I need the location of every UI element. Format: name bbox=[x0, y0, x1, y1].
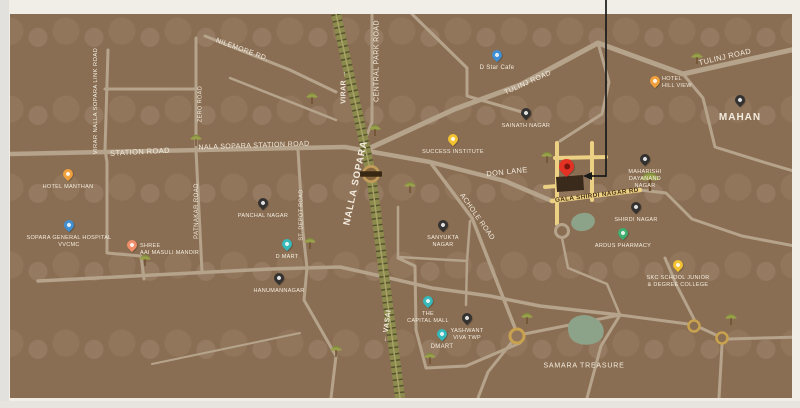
sopara-general-hospital-label-line: VVCMC bbox=[26, 242, 111, 249]
ardus-pharmacy-label: ARDUS PHARMACY bbox=[595, 243, 651, 250]
shree-aai-masuli-mandir-label-line: AAI MASULI MANDIR bbox=[140, 250, 199, 257]
hotel-hill-view-label-line: HOTEL bbox=[662, 76, 692, 83]
maharishi-dayanand-nagar-label: MAHARISHIDAYANANDNAGAR bbox=[628, 169, 661, 190]
sanyukta-nagar-label: SANYUKTANAGAR bbox=[427, 235, 459, 249]
maharishi-dayanand-nagar-label-line: MAHARISHI bbox=[628, 169, 661, 176]
label-zero-road: ZERO ROAD bbox=[198, 86, 204, 122]
label-patnakar-road: PATNAKAR ROAD bbox=[194, 183, 200, 239]
label-vasai: ← VASAI bbox=[381, 309, 392, 342]
yashwant-viva-twp-label-line: YASHWANT bbox=[451, 328, 484, 335]
mahan-pin bbox=[733, 93, 747, 107]
d-mart-pin bbox=[280, 237, 294, 251]
label-tulinj-road: TULINJ ROAD bbox=[504, 70, 553, 97]
shirdi-nagar-label-line: SHIRDI NAGAR bbox=[614, 217, 657, 224]
d-mart-label: D MART bbox=[276, 254, 299, 261]
hanumannagar-label-line: HANUMANNAGAR bbox=[254, 288, 305, 295]
skc-school-pin bbox=[671, 258, 685, 272]
the-capital-mall-pin bbox=[421, 294, 435, 308]
sanyukta-nagar-pin bbox=[436, 218, 450, 232]
label-achole-road: ACHOLE ROAD bbox=[458, 192, 495, 241]
success-institute-label: SUCCESS INSTITUTE bbox=[422, 149, 484, 156]
skc-school-label-line: & DEGREE COLLEGE bbox=[647, 282, 710, 289]
mahan-label: MAHAN bbox=[719, 111, 761, 124]
shree-aai-masuli-mandir-label: SHREEAAI MASULI MANDIR bbox=[140, 243, 199, 257]
hotel-manthan-label-line: HOTEL MANTHAN bbox=[43, 184, 94, 191]
label-nalla-sopara: NALLA SOPARA bbox=[342, 140, 369, 227]
hotel-manthan-label: HOTEL MANTHAN bbox=[43, 184, 94, 191]
d-mart-label-line: D MART bbox=[276, 254, 299, 261]
hotel-manthan-pin bbox=[61, 167, 75, 181]
the-capital-mall-label-line: CAPITAL MALL bbox=[407, 318, 449, 325]
labels-and-pins: VIRAR NALLA SOPARA LINK ROADZERO ROADNIL… bbox=[0, 0, 800, 408]
label-nala-sopara-station-road: NALA SOPARA STATION ROAD bbox=[198, 141, 309, 152]
panchal-nagar-label-line: PANCHAL NAGAR bbox=[238, 213, 288, 220]
label-central-park-road: CENTRAL PARK ROAD bbox=[374, 20, 381, 102]
label-gala-shirdi-nagar-rd: GALA SHIRDI NAGAR RD bbox=[555, 188, 640, 205]
skc-school-label-line: SKC SCHOOL JUNIOR bbox=[647, 275, 710, 282]
hotel-hill-view-label: HOTELHILL VIEW bbox=[662, 76, 692, 90]
shirdi-nagar-pin bbox=[629, 200, 643, 214]
hanumannagar-pin bbox=[272, 271, 286, 285]
hanumannagar-label: HANUMANNAGAR bbox=[254, 288, 305, 295]
success-institute-pin bbox=[446, 132, 460, 146]
sainath-nagar-pin bbox=[519, 106, 533, 120]
sainath-nagar-label-line: SAINATH NAGAR bbox=[502, 123, 550, 130]
sainath-nagar-label: SAINATH NAGAR bbox=[502, 123, 550, 130]
the-capital-mall-label: THECAPITAL MALL bbox=[407, 311, 449, 325]
sopara-general-hospital-label-line: SOPARA GENERAL HOSPITAL bbox=[26, 235, 111, 242]
dmart-pin bbox=[435, 327, 449, 341]
hotel-hill-view-label-line: HILL VIEW bbox=[662, 83, 692, 90]
shree-aai-masuli-mandir-pin bbox=[125, 238, 139, 252]
shirdi-nagar-label: SHIRDI NAGAR bbox=[614, 217, 657, 224]
yashwant-viva-twp-label: YASHWANTVIVA TWP bbox=[451, 328, 484, 342]
yashwant-viva-twp-label-line: VIVA TWP bbox=[451, 335, 484, 342]
yashwant-viva-twp-pin bbox=[460, 311, 474, 325]
maharishi-dayanand-nagar-label-line: NAGAR bbox=[628, 183, 661, 190]
sopara-general-hospital-pin bbox=[62, 218, 76, 232]
d-star-cafe-label: D Star Cafe bbox=[480, 65, 515, 73]
maharishi-dayanand-nagar-pin bbox=[638, 152, 652, 166]
label-virar-nalla-sopara-link-road: VIRAR NALLA SOPARA LINK ROAD bbox=[94, 48, 100, 154]
shree-aai-masuli-mandir-label-line: SHREE bbox=[140, 243, 199, 250]
ardus-pharmacy-label-line: ARDUS PHARMACY bbox=[595, 243, 651, 250]
panchal-nagar-pin bbox=[256, 196, 270, 210]
label-don-lane: DON LANE bbox=[486, 166, 528, 178]
success-institute-label-line: SUCCESS INSTITUTE bbox=[422, 149, 484, 156]
project-location-pin bbox=[555, 156, 576, 177]
mahan-label-line: MAHAN bbox=[719, 111, 761, 124]
d-star-cafe-pin bbox=[490, 48, 504, 62]
label-samara-treasure: SAMARA TREASURE bbox=[543, 363, 624, 370]
label-virar: VIRAR → bbox=[341, 70, 348, 104]
the-capital-mall-label-line: THE bbox=[407, 311, 449, 318]
dmart-label: DMART bbox=[431, 344, 454, 352]
maharishi-dayanand-nagar-label-line: DAYANAND bbox=[628, 176, 661, 183]
dmart-label-line: DMART bbox=[431, 344, 454, 352]
label-tulinj-road: TULINJ ROAD bbox=[698, 47, 752, 66]
ardus-pharmacy-pin bbox=[616, 226, 630, 240]
panchal-nagar-label: PANCHAL NAGAR bbox=[238, 213, 288, 220]
sopara-general-hospital-label: SOPARA GENERAL HOSPITALVVCMC bbox=[26, 235, 111, 249]
label-station-road: STATION ROAD bbox=[110, 147, 170, 158]
d-star-cafe-label-line: D Star Cafe bbox=[480, 65, 515, 73]
skc-school-label: SKC SCHOOL JUNIOR& DEGREE COLLEGE bbox=[647, 275, 710, 289]
sanyukta-nagar-label-line: NAGAR bbox=[427, 242, 459, 249]
label-nilemore-rd: NILEMORE RD. bbox=[215, 37, 269, 63]
page: VIRAR NALLA SOPARA LINK ROADZERO ROADNIL… bbox=[0, 0, 800, 408]
label-st-depot-road: ST. DEPOT ROAD bbox=[299, 189, 305, 240]
hotel-hill-view-pin bbox=[648, 74, 662, 88]
sanyukta-nagar-label-line: SANYUKTA bbox=[427, 235, 459, 242]
